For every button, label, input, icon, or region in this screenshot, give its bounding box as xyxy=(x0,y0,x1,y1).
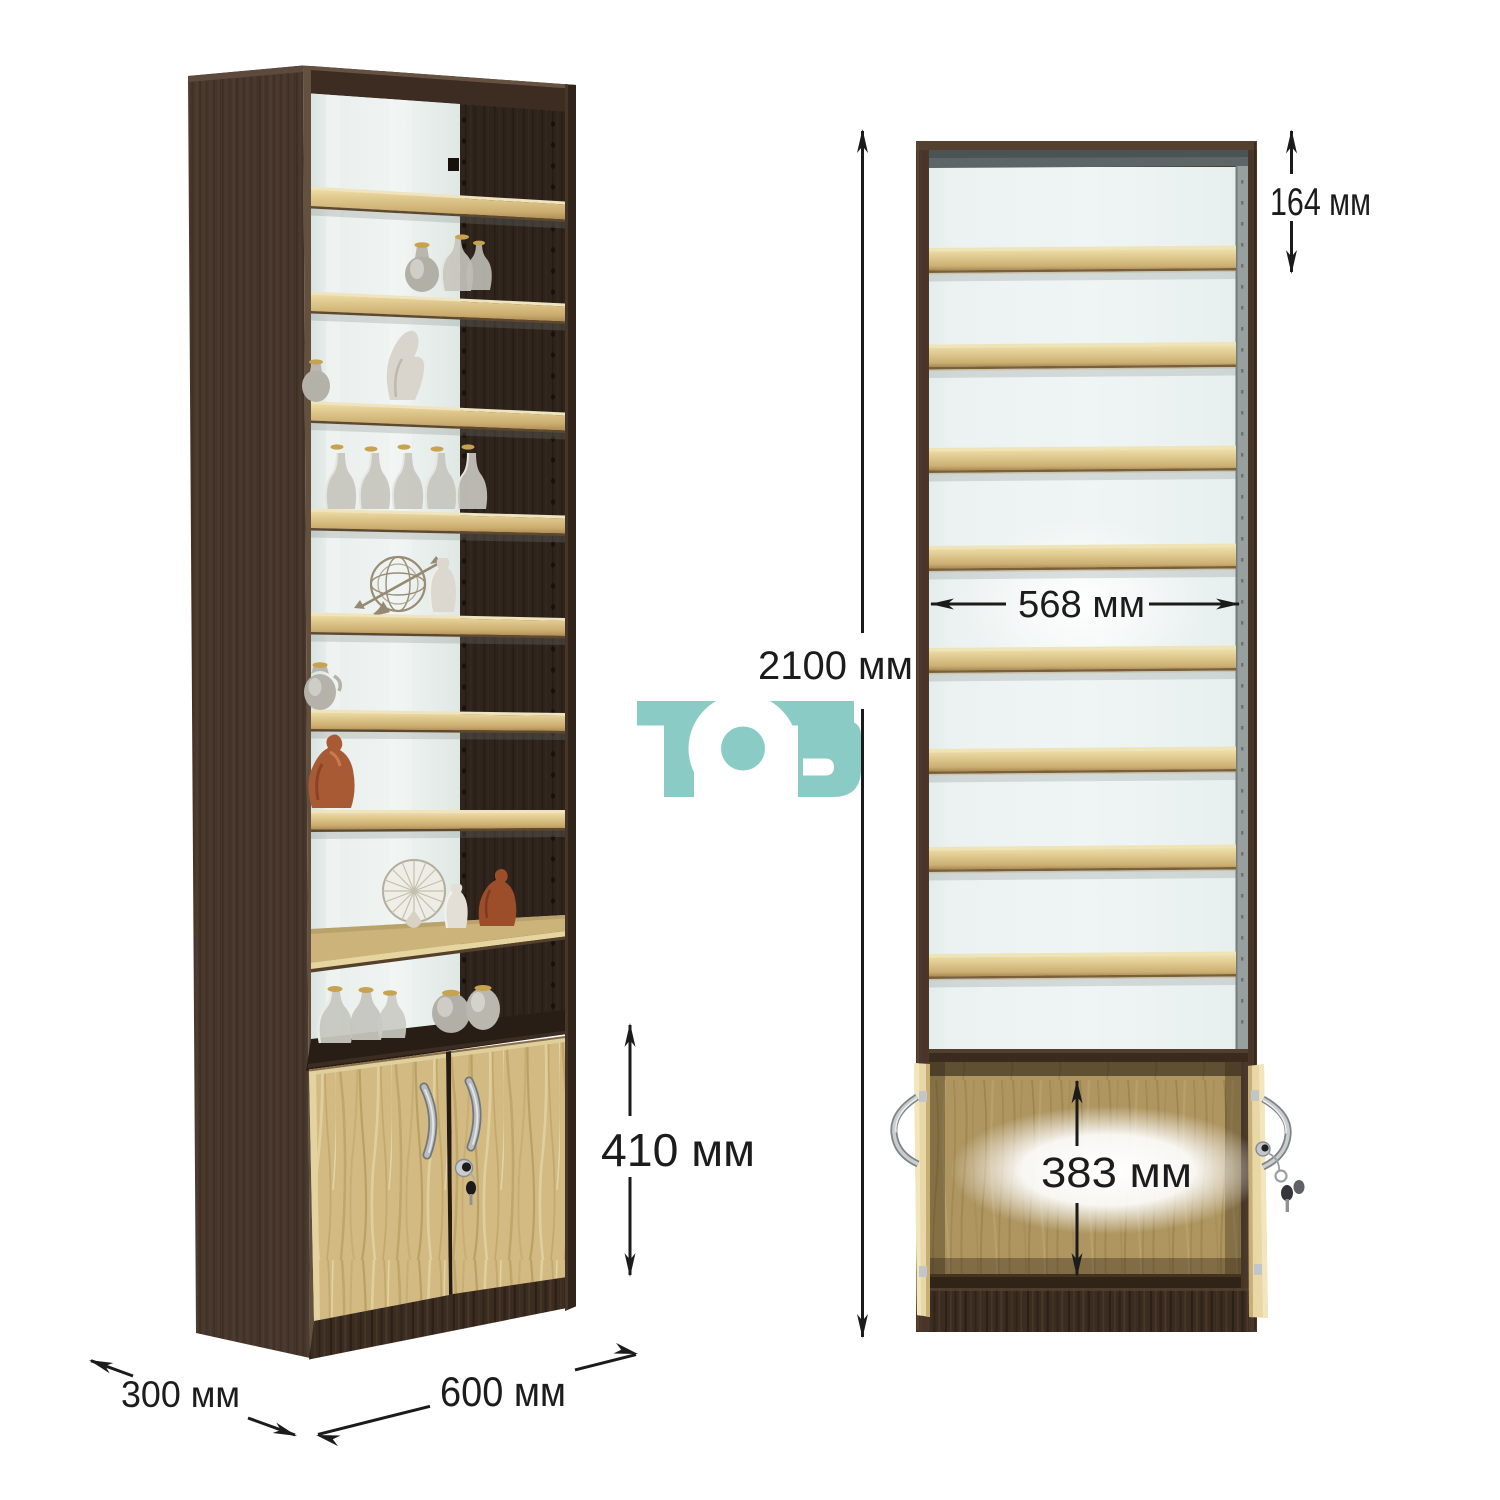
svg-text:300 мм: 300 мм xyxy=(121,1374,240,1415)
svg-text:2100 мм: 2100 мм xyxy=(758,644,913,688)
svg-text:568 мм: 568 мм xyxy=(1018,584,1145,626)
svg-text:164 мм: 164 мм xyxy=(1270,181,1371,224)
svg-text:600 мм: 600 мм xyxy=(440,1368,566,1415)
svg-text:410 мм: 410 мм xyxy=(601,1124,755,1176)
svg-text:383 мм: 383 мм xyxy=(1041,1149,1192,1197)
